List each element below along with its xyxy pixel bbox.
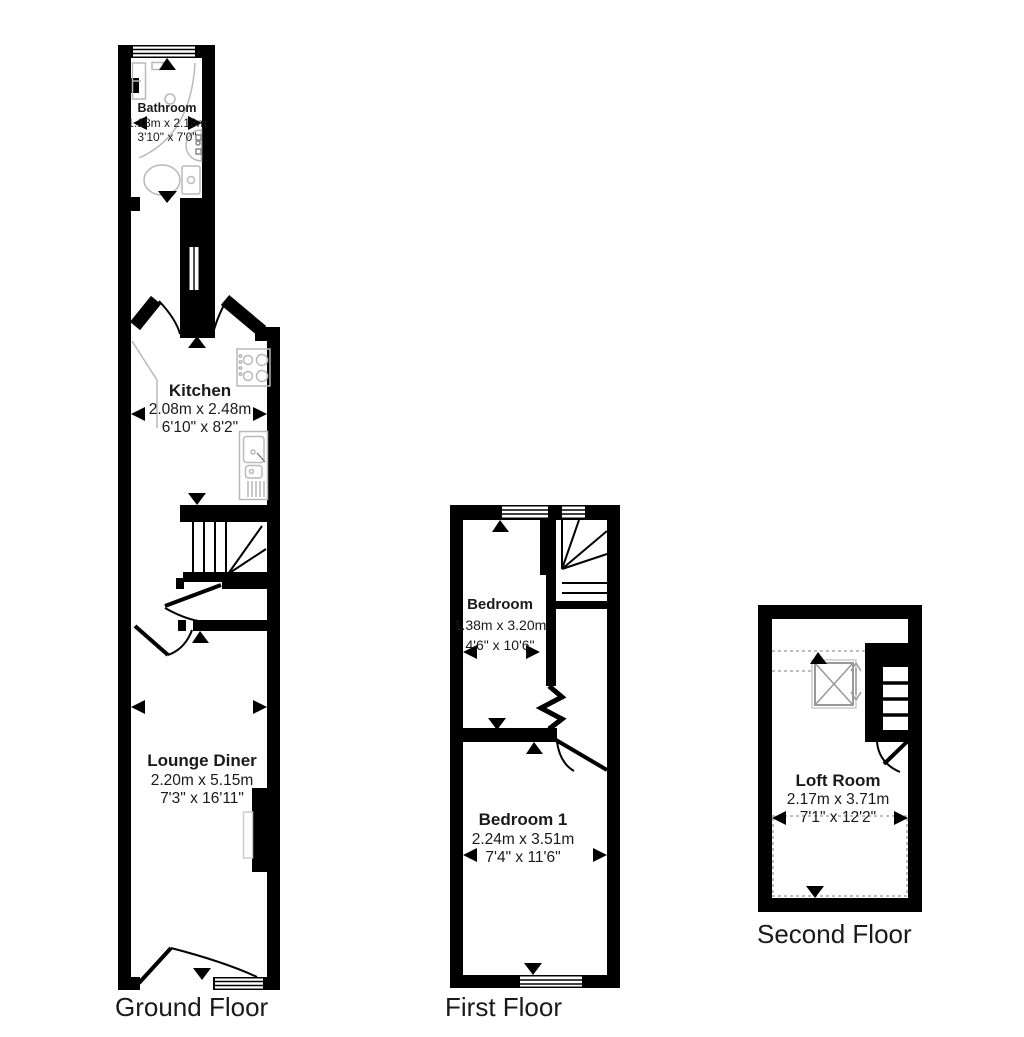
dimension-arrow [131, 700, 145, 714]
room-dims-imperial: 4'6" x 10'6" [466, 637, 535, 653]
wall [758, 605, 772, 912]
window [562, 507, 585, 518]
dimension-arrow [253, 407, 267, 421]
door-leaf [556, 740, 607, 770]
wall [267, 327, 280, 990]
second-floor-plan: Loft Room 2.17m x 3.71m 7'1" x 12'2" Sec… [757, 605, 922, 949]
fireplace-icon [244, 812, 253, 858]
hob-icon [237, 349, 270, 386]
chimney-breast [252, 788, 267, 872]
room-name: Bathroom [137, 101, 196, 115]
wall-zigzag [541, 686, 562, 729]
room-dims-metric: 2.24m x 3.51m [472, 831, 575, 848]
wall [222, 578, 267, 589]
door-leaf [165, 585, 221, 606]
wall [607, 505, 620, 988]
wall [118, 45, 131, 990]
room-dims-metric: 2.17m x 3.71m [787, 791, 890, 808]
door-arc [159, 301, 180, 334]
skylight-icon [812, 660, 856, 708]
room-dims-imperial: 6'10" x 8'2" [162, 419, 238, 436]
room-name: Bedroom [467, 596, 533, 613]
floor-label: First Floor [445, 992, 562, 1022]
room-name: Kitchen [169, 381, 231, 400]
room-name: Lounge Diner [147, 751, 257, 770]
wall [450, 728, 557, 742]
room-dims-imperial: 7'3" x 16'11" [160, 790, 244, 807]
sink-icon [240, 432, 268, 500]
dimension-arrow [463, 848, 477, 862]
wall-pier [178, 620, 186, 631]
room-dims-imperial: 7'1" x 12'2" [800, 809, 876, 826]
dimension-arrow [894, 811, 908, 825]
window [190, 247, 199, 290]
dimension-arrow [524, 963, 542, 975]
dimension-arrow [810, 652, 827, 664]
dimension-arrow [593, 848, 607, 862]
window [215, 979, 263, 989]
wall [118, 320, 131, 340]
door-leaf [135, 626, 168, 655]
room-dims-imperial: 7'4" x 11'6" [485, 849, 560, 866]
room-dims-metric: 2.20m x 5.15m [151, 772, 254, 789]
staircase [180, 505, 280, 582]
window [502, 507, 548, 518]
dimension-arrow [131, 407, 145, 421]
room-dims-metric: 2.08m x 2.48m [149, 401, 252, 418]
wall [758, 898, 922, 912]
dimension-arrow [158, 191, 177, 203]
toilet-icon [144, 165, 200, 195]
room-name: Loft Room [796, 771, 881, 790]
wall-diagonal [135, 300, 156, 326]
dimension-arrow [188, 493, 206, 505]
staircase [556, 520, 607, 609]
wall [546, 575, 556, 686]
floorplan-svg: Bathroom 1.18m x 2.13m 3'10" x 7'0" Kitc… [0, 0, 1024, 1037]
wall [540, 519, 556, 575]
wall [193, 620, 267, 631]
dimension-arrow [253, 700, 267, 714]
wall-pier [131, 197, 140, 211]
head-height-line [773, 818, 907, 896]
staircase [865, 643, 908, 742]
window [133, 47, 195, 57]
room-dims-metric: 1.18m x 2.13m [127, 116, 206, 130]
dimension-arrow [772, 811, 786, 825]
dimension-arrow [159, 58, 176, 70]
floorplan: Bathroom 1.18m x 2.13m 3'10" x 7'0" Kitc… [0, 0, 1024, 1037]
wall [758, 605, 922, 619]
window [520, 977, 582, 987]
dimension-arrow [492, 520, 509, 532]
wall-diagonal [225, 300, 262, 331]
room-name: Bedroom 1 [479, 810, 568, 829]
ground-floor-plan: Bathroom 1.18m x 2.13m 3'10" x 7'0" Kitc… [115, 45, 280, 1022]
first-floor-plan: Bedroom 1.38m x 3.20m 4'6" x 10'6" Bedro… [445, 505, 620, 1022]
floor-label: Second Floor [757, 919, 912, 949]
room-dims-imperial: 3'10" x 7'0" [137, 130, 196, 144]
wall [450, 505, 463, 988]
dimension-arrow [526, 742, 543, 754]
dimension-arrow [192, 631, 209, 643]
floor-label: Ground Floor [115, 992, 269, 1022]
room-dims-metric: 1.38m x 3.20m [454, 617, 547, 633]
door-arc [168, 630, 192, 655]
wall [908, 605, 922, 912]
wall-pier [176, 578, 184, 589]
